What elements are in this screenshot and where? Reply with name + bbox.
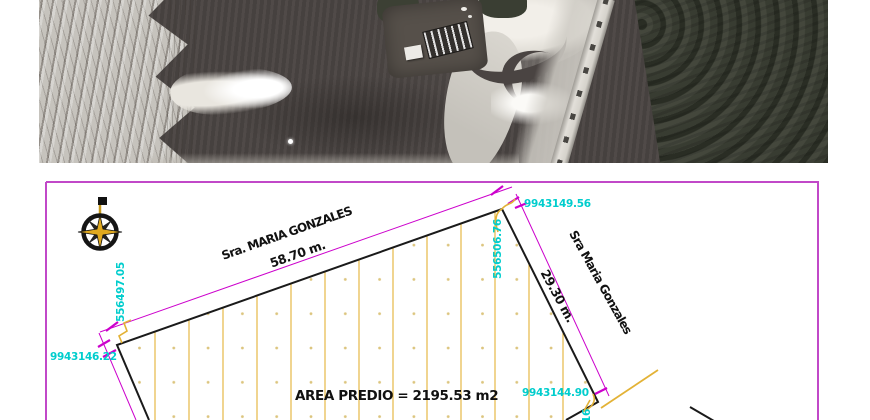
- coordinate-east-topright: 556506.76: [492, 219, 504, 279]
- coordinate-east-bottomright-partial: 16: [581, 409, 593, 420]
- compass-flag: [98, 197, 107, 205]
- coordinate-north-bottomright: 9943144.90: [522, 387, 589, 399]
- plan-canvas: Sra. MARIA GONZALES 58.70 m. Sra Maria G…: [0, 170, 870, 420]
- leader-left-vertex: [119, 320, 131, 343]
- tree-patch: [479, 0, 527, 18]
- north-compass-icon: [78, 197, 122, 249]
- bright-speck: [288, 139, 293, 144]
- coordinate-east-left: 556497.05: [115, 262, 127, 322]
- scanned-survey-page: Sra. MARIA GONZALES 58.70 m. Sra Maria G…: [0, 0, 870, 420]
- feature-line-black: [690, 407, 714, 420]
- feature-line-yellow: [601, 370, 658, 408]
- area-label: AREA PREDIO = 2195.53 m2: [295, 388, 498, 404]
- coordinate-north-left: 9943146.22: [50, 351, 117, 363]
- owner-label-right: Sra Maria Gonzales: [566, 228, 635, 337]
- compass-star-main: [78, 215, 122, 249]
- coordinate-north-topright: 9943149.56: [524, 198, 591, 210]
- bright-speck: [461, 7, 467, 11]
- aerial-photo: [39, 0, 828, 163]
- survey-plan: Sra. MARIA GONZALES 58.70 m. Sra Maria G…: [0, 170, 870, 420]
- bright-speck: [468, 15, 472, 18]
